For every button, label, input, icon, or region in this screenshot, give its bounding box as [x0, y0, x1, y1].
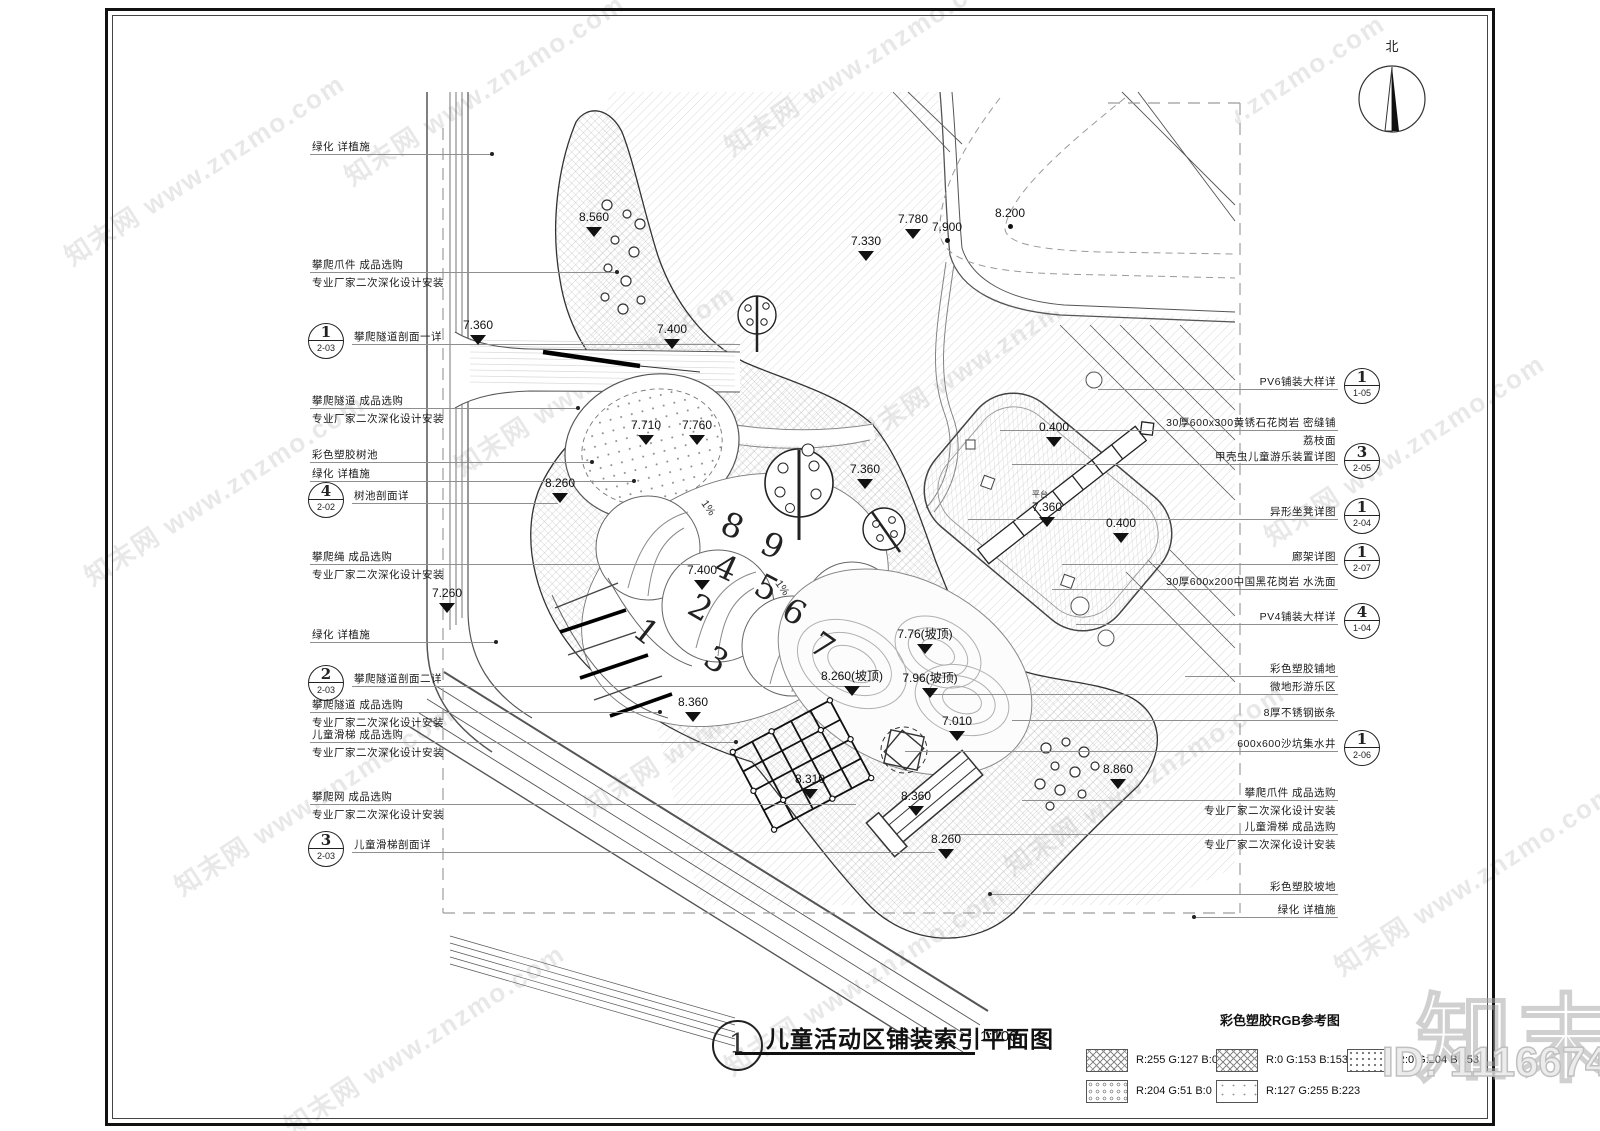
spot-level-triangle: [664, 339, 680, 349]
right-leader-line: [1052, 589, 1338, 590]
leader-end-dot: [590, 460, 594, 464]
left-annotation-label: 树池剖面详: [354, 488, 409, 503]
left-annotation-label2: 专业厂家二次深化设计安装: [312, 411, 444, 426]
legend-label: R:0 G:153 B:153: [1266, 1054, 1348, 1066]
spot-level-triangle: [938, 849, 954, 859]
right-annotation-label: 绿化 详植施: [1278, 902, 1336, 917]
elevation-marker: 7.260: [402, 584, 492, 613]
right-annotation-label: 8厚不锈钢嵌条: [1264, 705, 1336, 720]
right-leader-line: [1076, 624, 1338, 625]
spot-level-triangle: [802, 789, 818, 799]
leader-end-dot: [576, 406, 580, 410]
elevation-marker: 7.010: [912, 712, 1002, 741]
right-annotation-label: 廊架详图: [1292, 549, 1336, 564]
right-annotation-label: 微地形游乐区: [1270, 679, 1336, 694]
spot-level-triangle: [858, 251, 874, 261]
right-annotation-label: 600x600沙坑集水井: [1237, 736, 1336, 751]
detail-ref-bubble: 32-05: [1344, 443, 1380, 479]
left-leader-line: [310, 642, 496, 643]
legend-swatch-cross: [1086, 1049, 1128, 1072]
left-leader-line: [310, 564, 700, 565]
spot-level-triangle: [908, 806, 924, 816]
right-annotation-label: 30厚600x200中国黑花岗岩 水洗面: [1166, 574, 1336, 589]
detail-ref-bubble: 12-06: [1344, 730, 1380, 766]
left-annotation-label: 攀爬隧道 成品选购: [312, 393, 403, 408]
detail-ref-number: 4: [309, 483, 343, 500]
elevation-marker: 8.560: [549, 208, 639, 237]
left-leader-line: [310, 462, 592, 463]
north-label: 北: [1352, 36, 1432, 55]
spot-level-triangle: [857, 479, 873, 489]
detail-ref-number: 1: [1345, 731, 1379, 748]
detail-ref-number: 3: [1345, 444, 1379, 461]
spot-level-triangle: [949, 731, 965, 741]
elevation-value: 8.310: [795, 772, 825, 786]
detail-ref-bubble: 12-04: [1344, 498, 1380, 534]
leader-end-dot: [988, 892, 992, 896]
title-underline: [735, 1052, 975, 1055]
right-leader-line: [1185, 676, 1338, 677]
detail-ref-bubble: 12-03: [308, 323, 344, 359]
right-annotation-label2: 荔枝面: [1303, 433, 1336, 448]
spot-level-triangle: [917, 644, 933, 654]
right-leader-line: [1062, 564, 1338, 565]
elevation-value: 8.260: [545, 476, 575, 490]
elevation-marker: 7.360: [433, 316, 523, 345]
left-leader-line: [352, 852, 935, 853]
elevation-marker: 8.360: [648, 693, 738, 722]
left-annotation-label: 儿童滑梯剖面详: [354, 837, 431, 852]
left-annotation-label2: 专业厂家二次深化设计安装: [312, 745, 444, 760]
detail-ref-bubble: 12-07: [1344, 543, 1380, 579]
detail-ref-sheet: 1-04: [1345, 621, 1379, 635]
detail-ref-number: 1: [1345, 544, 1379, 561]
legend-swatch-honey: [1086, 1080, 1128, 1103]
spot-level-triangle: [1039, 517, 1055, 527]
left-annotation-label: 攀爬绳 成品选购: [312, 549, 392, 564]
elevation-value: 8.360: [901, 789, 931, 803]
detail-ref-sheet: 2-03: [309, 341, 343, 355]
detail-ref-sheet: 2-06: [1345, 748, 1379, 762]
left-annotation-label2: 专业厂家二次深化设计安装: [312, 275, 444, 290]
elevation-value: 7.760: [682, 418, 712, 432]
detail-ref-number: 1: [1345, 369, 1379, 386]
title-ref-circle: 1: [712, 1020, 763, 1071]
detail-ref-sheet: 1-05: [1345, 386, 1379, 400]
right-leader-line: [1194, 917, 1338, 918]
right-annotation-label: 彩色塑胶坡地: [1270, 879, 1336, 894]
detail-ref-bubble: 11-05: [1344, 368, 1380, 404]
elevation-marker: 0.400: [1009, 418, 1099, 447]
detail-ref-number: 1: [309, 324, 343, 341]
legend-label: R:204 G:51 B:0: [1136, 1085, 1212, 1097]
left-annotation-label: 攀爬隧道 成品选购: [312, 697, 403, 712]
left-leader-line: [310, 272, 617, 273]
left-annotation-label: 攀爬隧道剖面二详: [354, 671, 442, 686]
spot-level-triangle: [1046, 437, 1062, 447]
elevation-marker: 8.260: [901, 830, 991, 859]
right-leader-line: [930, 694, 1338, 695]
elevation-value: 8.260: [931, 832, 961, 846]
elevation-value: 8.560: [579, 210, 609, 224]
legend-swatch-cross: [1216, 1049, 1258, 1072]
elevation-value: 7.900: [932, 220, 962, 234]
right-leader-line: [952, 834, 1338, 835]
left-annotation-label2: 专业厂家二次深化设计安装: [312, 807, 444, 822]
detail-ref-sheet: 2-07: [1345, 561, 1379, 575]
left-annotation-label: 绿化 详植施: [312, 139, 370, 154]
spot-level-triangle: [689, 435, 705, 445]
elevation-value: 7.360: [463, 318, 493, 332]
spot-level-triangle: [586, 227, 602, 237]
right-leader-line: [905, 751, 1338, 752]
elevation-value: 7.360: [1032, 500, 1062, 514]
left-annotation-label: 攀爬隧道剖面一详: [354, 329, 442, 344]
elevation-value: 0.400: [1039, 420, 1069, 434]
elevation-marker: 8.260(坡顶): [807, 667, 897, 696]
sand-area-label: 平台: [1032, 489, 1048, 500]
elevation-value: 7.010: [942, 714, 972, 728]
detail-ref-number: 3: [309, 832, 343, 849]
elevation-value: 7.400: [657, 322, 687, 336]
detail-ref-bubble: 32-03: [308, 831, 344, 867]
leader-end-dot: [734, 740, 738, 744]
elevation-marker: 7.360: [820, 460, 910, 489]
left-leader-line: [310, 804, 856, 805]
leader-end-dot: [490, 152, 494, 156]
right-annotation-label2: 专业厂家二次深化设计安装: [1204, 837, 1336, 852]
detail-ref-number: 4: [1345, 604, 1379, 621]
elevation-value: 7.360: [850, 462, 880, 476]
right-leader-line: [1022, 800, 1338, 801]
leader-end-dot: [632, 479, 636, 483]
left-leader-line: [310, 154, 492, 155]
detail-ref-sheet: 2-03: [309, 849, 343, 863]
legend-label: R:255 G:127 B:0: [1136, 1054, 1218, 1066]
elevation-value: 8.360: [678, 695, 708, 709]
right-annotation-label: 甲壳虫儿童游乐装置详图: [1215, 449, 1336, 464]
elevation-marker: 8.360: [871, 787, 961, 816]
legend-label: R:127 G:255 B:223: [1266, 1085, 1360, 1097]
elevation-marker: 7.760: [652, 416, 742, 445]
elevation-marker: 8.200: [965, 204, 1055, 229]
detail-ref-sheet: 2-02: [309, 500, 343, 514]
detail-ref-number: 1: [1345, 499, 1379, 516]
right-annotation-label: 彩色塑胶铺地: [1270, 661, 1336, 676]
detail-ref-bubble: 22-03: [308, 665, 344, 701]
detail-ref-sheet: 2-05: [1345, 461, 1379, 475]
right-annotation-label: 攀爬爪件 成品选购: [1245, 785, 1336, 800]
spot-level-triangle: [922, 688, 938, 698]
north-arrow: 北: [1352, 36, 1432, 146]
detail-ref-sheet: 2-04: [1345, 516, 1379, 530]
spot-level-triangle: [1113, 533, 1129, 543]
elevation-value: 8.260(坡顶): [821, 669, 883, 683]
spot-level-triangle: [439, 603, 455, 613]
elevation-value: 7.260: [432, 586, 462, 600]
elevation-marker: 8.310: [765, 770, 855, 799]
elevation-marker: 7.400: [627, 320, 717, 349]
left-leader-line: [352, 686, 870, 687]
cad-sheet: 知末网 www.znzmo.com知末网 www.znzmo.com知末网 ww…: [0, 0, 1600, 1131]
detail-ref-sheet: 2-03: [309, 683, 343, 697]
detail-ref-bubble: 41-04: [1344, 603, 1380, 639]
title-scale: 1:100: [980, 1028, 1018, 1045]
right-leader-line: [990, 894, 1338, 895]
right-annotation-label: 30厚600x300黄锈石花岗岩 密缝铺: [1166, 415, 1336, 430]
leader-end-dot: [1192, 915, 1196, 919]
right-annotation-label: 儿童滑梯 成品选购: [1245, 819, 1336, 834]
elevation-value: 8.200: [995, 206, 1025, 220]
left-annotation-label: 攀爬网 成品选购: [312, 789, 392, 804]
legend-swatch-sparse: [1216, 1080, 1258, 1103]
right-annotation-label2: 专业厂家二次深化设计安装: [1204, 803, 1336, 818]
right-annotation-label: 异形坐凳详图: [1270, 504, 1336, 519]
elevation-marker: 7.76(坡顶): [880, 625, 970, 654]
elevation-value: 8.860: [1103, 762, 1133, 776]
right-leader-line: [1098, 389, 1338, 390]
elevation-marker: 8.860: [1073, 760, 1163, 789]
spot-level-triangle: [685, 712, 701, 722]
elevation-marker: 7.96(坡顶): [885, 669, 975, 698]
elevation-marker: 8.260: [515, 474, 605, 503]
left-leader-line: [310, 712, 660, 713]
elevation-marker: 0.400: [1076, 514, 1166, 543]
left-annotation-label: 绿化 详植施: [312, 627, 370, 642]
left-annotation-label: 彩色塑胶树池: [312, 447, 378, 462]
left-annotation-label: 攀爬爪件 成品选购: [312, 257, 403, 272]
detail-ref-bubble: 42-02: [308, 482, 344, 518]
right-annotation-label: PV4铺装大样详: [1260, 609, 1336, 624]
right-leader-line: [1012, 464, 1338, 465]
elevation-value: 7.96(坡顶): [902, 671, 957, 685]
left-annotation-label2: 专业厂家二次深化设计安装: [312, 567, 444, 582]
spot-level-triangle: [470, 335, 486, 345]
spot-level-triangle: [1110, 779, 1126, 789]
detail-ref-number: 2: [309, 666, 343, 683]
right-leader-line: [1012, 720, 1338, 721]
left-leader-line: [310, 742, 736, 743]
elevation-value: 7.76(坡顶): [897, 627, 952, 641]
right-annotation-label: PV6铺装大样详: [1260, 374, 1336, 389]
left-leader-line: [352, 503, 558, 504]
spot-level-dot: [1008, 224, 1013, 229]
spot-level-triangle: [844, 686, 860, 696]
spot-level-dot: [945, 238, 950, 243]
watermark-id: ID: 1116674630: [1382, 1038, 1600, 1086]
left-annotation-label: 儿童滑梯 成品选购: [312, 727, 403, 742]
leader-end-dot: [615, 270, 619, 274]
left-annotation-label: 绿化 详植施: [312, 466, 370, 481]
leader-end-dot: [494, 640, 498, 644]
left-leader-line: [310, 408, 578, 409]
legend-title: 彩色塑胶RGB参考图: [1200, 1010, 1360, 1029]
elevation-value: 0.400: [1106, 516, 1136, 530]
spot-level-triangle: [552, 493, 568, 503]
